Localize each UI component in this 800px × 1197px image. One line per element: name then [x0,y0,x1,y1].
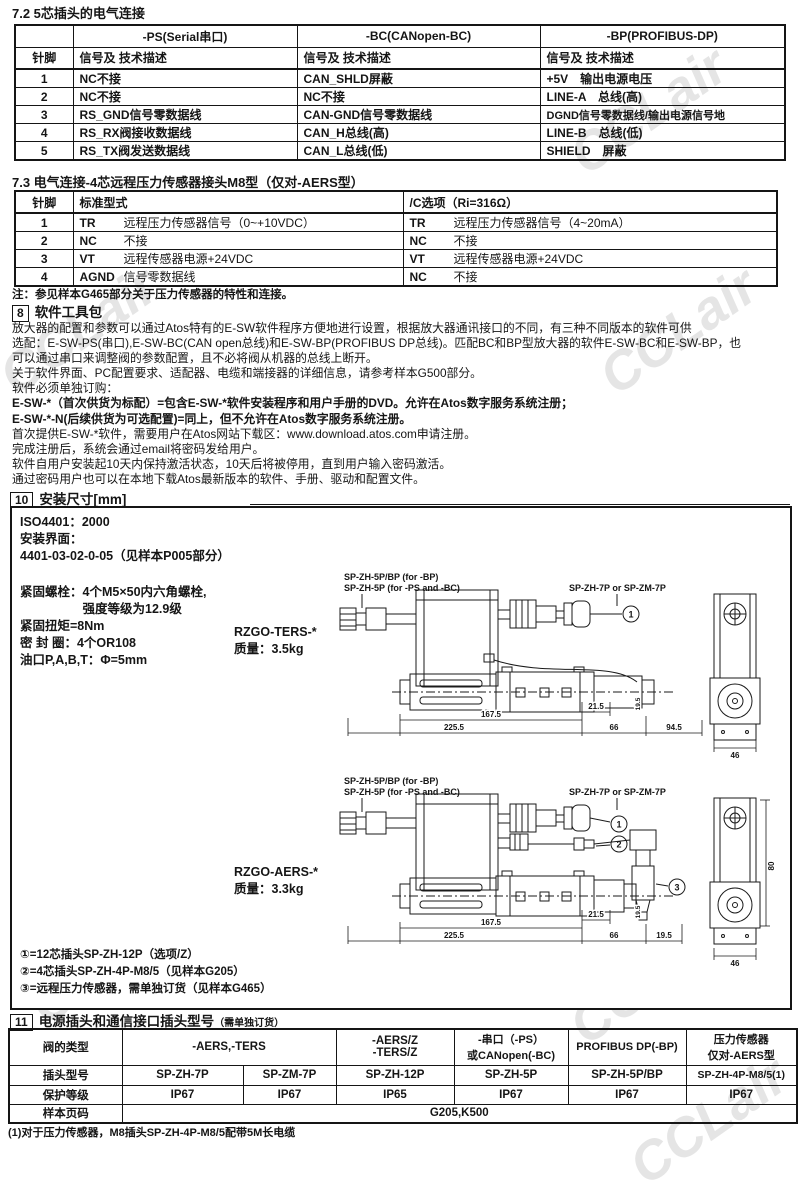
plug-models-table: 阀的类型 -AERS,-TERS -AERS/Z-TERS/Z -串口（-PS）… [8,1028,798,1124]
bp-cell: LINE-A 总线(高) [540,88,785,106]
col-header-ps: -PS(Serial串口) [73,25,297,47]
ps-cell: RS_RX阀接收数据线 [73,124,297,142]
bp-cell: DGND信号零数据线/输出电源信号地 [540,106,785,124]
datasheet-page: 7.2 5芯插头的电气连接 -PS(Serial串口) -BC(CANopen-… [0,0,800,1138]
group-line: 或CANopen(-BC) [461,1047,562,1063]
ip-cell: IP67 [122,1085,243,1104]
table-corner-cell [15,25,73,47]
m8-sensor-connector-table: 针脚 标准型式 /C选项（Ri=316Ω） 1 TR远程压力传感器信号（0~+1… [14,190,778,287]
dim-19-5: 19.5 [656,931,672,940]
ps-cell: NC不接 [73,69,297,88]
sensor-note: 注：参见样本G465部分关于压力传感器的特性和连接。 [12,286,293,302]
model-weight: 质量：3.3kg [234,881,318,898]
plug-cell: SP-ZH-4P-M8/5(1) [686,1065,797,1085]
desc-header: 信号及 技术描述 [297,47,540,69]
installation-drawing-box: ISO4401：2000 安装界面： 4401-03-02-0-05（见样本P0… [10,506,792,1010]
c-cell: NC不接 [403,232,777,250]
group-aers-z: -AERS/Z-TERS/Z [336,1029,454,1065]
bc-cell: CAN-GND信号零数据线 [297,106,540,124]
group-line: 压力传感器 [693,1031,791,1047]
signal-desc: 不接 [124,234,148,248]
signal-code: TR [410,216,454,230]
c-cell: TR远程压力传感器信号（4~20mA） [403,213,777,232]
dim-225-5: 225.5 [444,931,465,940]
software-line: 关于软件界面、PC配置要求、适配器、电缆和端接器的详细信息，请参考样本G500部… [12,366,796,381]
signal-code: NC [410,270,454,284]
bp-cell: LINE-B 总线(低) [540,124,785,142]
ters-valve-drawing: SP-ZH-5P/BP (for -BP) SP-ZH-5P (for -PS … [334,570,789,774]
desc-header: 信号及 技术描述 [73,47,297,69]
signal-code: AGND [80,270,124,284]
pin-header: 针脚 [15,191,73,213]
group-profibus: PROFIBUS DP(-BP) [568,1029,686,1065]
mounting-line: 密 封 圈：4个OR108 [20,635,207,652]
software-line: E-SW-*（首次供货为标配）=包含E-SW-*软件安装程序和用户手册的DVD。… [12,396,796,411]
callout-2-icon: 2 [616,840,621,850]
iso-line: 安装界面： [20,531,230,548]
row-label-catalog-page: 样本页码 [9,1104,122,1123]
signal-code: TR [80,216,124,230]
dim-21-5: 21.5 [588,702,604,711]
software-line: 选配：E-SW-PS(串口),E-SW-BC(CAN open总线)和E-SW-… [12,336,796,351]
connector-label-bp: SP-ZH-5P/BP (for -BP) [344,776,438,786]
plug-cell: SP-ZM-7P [243,1065,336,1085]
callout-1-icon: 1 [616,820,621,830]
software-line: 完成注册后，系统会通过email将密码发给用户。 [12,442,796,457]
plug-cell: SP-ZH-7P [122,1065,243,1085]
signal-desc: 信号零数据线 [124,270,196,284]
dim-66: 66 [610,931,619,940]
callout-3-icon: 3 [674,883,679,893]
dim-46: 46 [731,751,740,760]
dim-167-5: 167.5 [481,918,502,927]
desc-header: 信号及 技术描述 [540,47,785,69]
aers-valve-drawing: SP-ZH-5P/BP (for -BP) SP-ZH-5P (for -PS … [334,774,789,996]
pin-cell: 5 [15,142,73,161]
software-line: 软件必须单独订购： [12,381,796,396]
pin-cell: 2 [15,232,73,250]
connector-label-bp: SP-ZH-5P/BP (for -BP) [344,572,438,582]
drawing-footnote-2: ②=4芯插头SP-ZH-4P-M8/5（见样本G205） [20,963,245,979]
std-cell: TR远程压力传感器信号（0~+10VDC） [73,213,403,232]
c-cell: VT远程传感器电源+24VDC [403,250,777,268]
five-pin-connector-table: -PS(Serial串口) -BC(CANopen-BC) -BP(PROFIB… [14,24,786,161]
pin-cell: 1 [15,213,73,232]
iso-line: ISO4401：2000 [20,514,230,531]
dim-225-5: 225.5 [444,723,465,732]
mounting-line: 紧固扭矩=8Nm [20,618,207,635]
pin-cell: 1 [15,69,73,88]
plug-cell: SP-ZH-5P/BP [568,1065,686,1085]
group-serial-canopen: -串口（-PS）或CANopen(-BC) [454,1029,568,1065]
drawing-footnote-3: ③=远程压力传感器，需单独订货（见样本G465） [20,980,272,996]
heading-rule [250,504,790,505]
col-header-bp: -BP(PROFIBUS-DP) [540,25,785,47]
std-cell: AGND信号零数据线 [73,268,403,287]
row-label-plug-model: 插头型号 [9,1065,122,1085]
bc-cell: CAN_L总线(低) [297,142,540,161]
group-line: -AERS/Z [343,1035,448,1047]
ps-cell: NC不接 [73,88,297,106]
model-aers-label: RZGO-AERS-* 质量：3.3kg [234,864,318,898]
signal-desc: 不接 [454,270,478,284]
bp-cell: SHIELD 屏蔽 [540,142,785,161]
dim-80-vertical: 80 [767,861,776,870]
mounting-line: 紧固螺栓：4个M5×50内六角螺栓, [20,584,207,601]
signal-desc: 远程传感器电源+24VDC [124,252,254,266]
ps-cell: RS_GND信号零数据线 [73,106,297,124]
section-7-3-title: 7.3 电气连接-4芯远程压力传感器接头M8型（仅对-AERS型） [12,172,364,191]
model-name: RZGO-TERS-* [234,624,317,641]
bc-cell: CAN_SHLD屏蔽 [297,69,540,88]
model-weight: 质量：3.5kg [234,641,317,658]
software-line: E-SW-*-N(后续供货为可选配置)=同上，但不允许在Atos数字服务系统注册… [12,412,796,427]
signal-code: VT [410,252,454,266]
software-line: 可以通过串口来调整阀的参数配置，且不必将阀从机器的总线上断开。 [12,351,796,366]
row-label-protection: 保护等级 [9,1085,122,1104]
pin-cell: 4 [15,268,73,287]
section-8-number: 8 [12,305,29,322]
group-line: 仅对-AERS型 [693,1047,791,1063]
section-11-title: 电源插头和通信接口插头型号 [39,1014,215,1029]
row-label-valve-type: 阀的类型 [9,1029,122,1065]
drawing-footnote-1: ①=12芯插头SP-ZH-12P（选项/Z） [20,946,199,962]
ip-cell: IP67 [568,1085,686,1104]
section-7-2-title: 7.2 5芯插头的电气连接 [12,3,145,22]
iso-standard-block: ISO4401：2000 安装界面： 4401-03-02-0-05（见样本P0… [20,514,230,565]
pin-cell: 3 [15,106,73,124]
pin-cell: 3 [15,250,73,268]
mounting-info-block: 紧固螺栓：4个M5×50内六角螺栓, 强度等级为12.9级 紧固扭矩=8Nm 密… [20,584,207,669]
software-line: 通过密码用户也可以在本地下载Atos最新版本的软件、手册、驱动和配置文件。 [12,472,796,487]
ps-cell: RS_TX阀发送数据线 [73,142,297,161]
callout-1-icon: 1 [628,610,633,620]
dim-167-5: 167.5 [481,710,502,719]
signal-code: NC [80,234,124,248]
c-option-header: /C选项（Ri=316Ω） [403,191,777,213]
connector-label-7p: SP-ZH-7P or SP-ZM-7P [569,787,666,797]
group-line: -串口（-PS） [461,1031,562,1047]
group-pressure-sensor: 压力传感器仅对-AERS型 [686,1029,797,1065]
dim-21-5: 21.5 [588,910,604,919]
bp-cell: +5V 输出电源电压 [540,69,785,88]
connector-label-psbc: SP-ZH-5P (for -PS and -BC) [344,583,460,593]
ip-cell: IP67 [686,1085,797,1104]
pin-cell: 4 [15,124,73,142]
c-cell: NC不接 [403,268,777,287]
group-line: -TERS/Z [343,1047,448,1059]
section-8-title: 软件工具包 [35,305,103,320]
signal-desc: 远程压力传感器信号（4~20mA） [454,216,631,230]
software-line: 软件自用户安装起10天内保持激活状态，10天后将被停用，直到用户输入密码激活。 [12,457,796,472]
connector-label-psbc: SP-ZH-5P (for -PS and -BC) [344,787,460,797]
dim-19-5-vertical: 19.5 [635,697,642,710]
bc-cell: CAN_H总线(高) [297,124,540,142]
standard-header: 标准型式 [73,191,403,213]
connector-label-7p: SP-ZH-7P or SP-ZM-7P [569,583,666,593]
pin-cell: 2 [15,88,73,106]
plug-cell: SP-ZH-5P [454,1065,568,1085]
dim-46: 46 [731,959,740,968]
mounting-line: 油口P,A,B,T：Φ=5mm [20,652,207,669]
dim-94-5: 94.5 [666,723,682,732]
plug-cell: SP-ZH-12P [336,1065,454,1085]
std-cell: NC不接 [73,232,403,250]
ip-cell: IP67 [243,1085,336,1104]
section-10-title: 安装尺寸[mm] [39,492,126,507]
dim-19-5-vertical: 19.5 [635,905,642,918]
signal-code: NC [410,234,454,248]
software-line: 放大器的配置和参数可以通过Atos特有的E-SW软件程序方便地进行设置，根据放大… [12,321,796,336]
catalog-page-cell: G205,K500 [122,1104,797,1123]
pin-header: 针脚 [15,47,73,69]
signal-code: VT [80,252,124,266]
signal-desc: 远程传感器电源+24VDC [454,252,584,266]
signal-desc: 不接 [454,234,478,248]
mounting-line: 强度等级为12.9级 [20,601,207,618]
model-ters-label: RZGO-TERS-* 质量：3.5kg [234,624,317,658]
iso-line: 4401-03-02-0-05（见样本P005部分） [20,548,230,565]
bc-cell: NC不接 [297,88,540,106]
ip-cell: IP65 [336,1085,454,1104]
col-header-bc: -BC(CANopen-BC) [297,25,540,47]
model-name: RZGO-AERS-* [234,864,318,881]
signal-desc: 远程压力传感器信号（0~+10VDC） [124,216,315,230]
software-paragraph: 放大器的配置和参数可以通过Atos特有的E-SW软件程序方便地进行设置，根据放大… [12,321,796,487]
group-aers-ters: -AERS,-TERS [122,1029,336,1065]
ip-cell: IP67 [454,1085,568,1104]
dim-66: 66 [610,723,619,732]
std-cell: VT远程传感器电源+24VDC [73,250,403,268]
software-line: 首次提供E-SW-*软件，需要用户在Atos网站下载区：www.download… [12,427,796,442]
